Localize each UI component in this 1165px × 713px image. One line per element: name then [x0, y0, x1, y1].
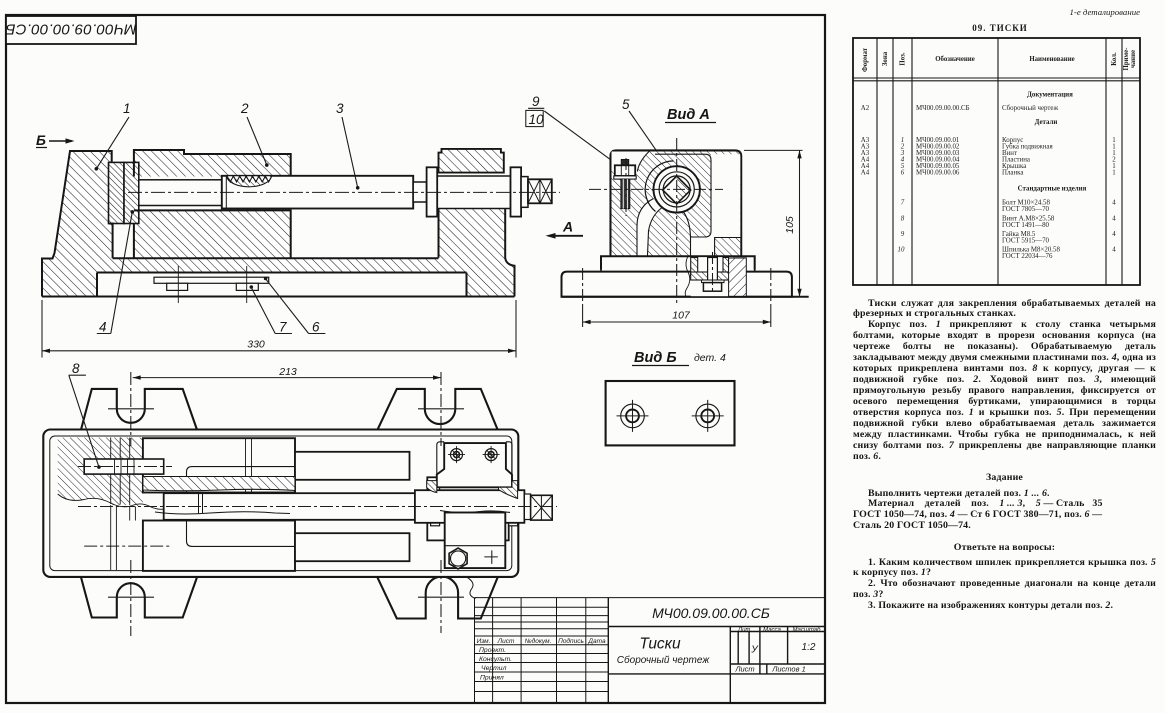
svg-text:А: А	[562, 219, 573, 235]
svg-text:7: 7	[279, 320, 287, 335]
svg-text:Листов 1: Листов 1	[771, 665, 806, 674]
svg-text:Проект.: Проект.	[479, 647, 506, 654]
svg-text:Лист: Лист	[497, 638, 515, 645]
svg-text:5: 5	[622, 97, 630, 112]
svg-text:МЧ00.09.00.00.СБ: МЧ00.09.00.00.СБ	[5, 21, 136, 38]
svg-text:У: У	[750, 645, 759, 656]
svg-text:Принял: Принял	[480, 675, 504, 682]
svg-text:МЧ00.09.00.00.СБ: МЧ00.09.00.00.СБ	[916, 105, 970, 112]
svg-text:Сборочный чертеж: Сборочный чертеж	[1002, 105, 1058, 112]
svg-text:№докум.: №докум.	[525, 637, 552, 645]
svg-text:Формат: Формат	[862, 47, 869, 72]
svg-text:Детали: Детали	[1035, 119, 1058, 126]
svg-text:4: 4	[1112, 231, 1116, 238]
svg-text:Лит.: Лит.	[737, 627, 752, 633]
svg-text:Масштаб: Масштаб	[792, 627, 821, 633]
svg-text:Изм.: Изм.	[477, 638, 491, 645]
svg-text:Консульт.: Консульт.	[479, 656, 512, 663]
svg-text:Подпись: Подпись	[558, 637, 584, 645]
svg-text:ГОСТ 1491—80: ГОСТ 1491—80	[1002, 222, 1050, 229]
svg-text:Планка: Планка	[1002, 170, 1023, 177]
svg-text:Вид А: Вид А	[667, 107, 710, 123]
svg-text:ГОСТ 22034—76: ГОСТ 22034—76	[1002, 253, 1053, 260]
svg-text:Зона: Зона	[882, 51, 889, 66]
svg-text:7: 7	[901, 200, 905, 207]
svg-text:105: 105	[784, 216, 796, 234]
svg-text:330: 330	[247, 339, 265, 351]
svg-text:Масса: Масса	[763, 627, 781, 633]
svg-text:9: 9	[532, 94, 540, 109]
svg-text:6: 6	[312, 320, 320, 335]
svg-text:2: 2	[240, 101, 249, 116]
svg-text:Чертил: Чертил	[481, 665, 507, 672]
svg-text:Б: Б	[36, 132, 46, 148]
svg-text:А2: А2	[861, 105, 870, 112]
svg-text:10: 10	[898, 247, 905, 254]
svg-text:4: 4	[1112, 247, 1116, 254]
svg-text:Приме-: Приме-	[1123, 47, 1130, 71]
svg-text:1: 1	[1112, 170, 1116, 177]
svg-text:дет. 4: дет. 4	[694, 352, 726, 364]
svg-text:Стандартные изделия: Стандартные изделия	[1018, 186, 1087, 193]
svg-text:ГОСТ 5915—70: ГОСТ 5915—70	[1002, 238, 1050, 245]
svg-text:213: 213	[278, 366, 297, 378]
svg-text:Наименование: Наименование	[1029, 56, 1074, 63]
svg-text:МЧ00.09.00.00.СБ: МЧ00.09.00.00.СБ	[652, 605, 770, 621]
svg-text:Кол.: Кол.	[1111, 52, 1118, 66]
svg-text:Тиски: Тиски	[639, 636, 681, 653]
svg-text:10: 10	[529, 112, 545, 127]
svg-text:9: 9	[901, 231, 905, 238]
svg-text:1: 1	[123, 101, 131, 116]
svg-text:4: 4	[1112, 216, 1116, 223]
svg-text:Обозначение: Обозначение	[935, 56, 974, 63]
svg-text:Поз.: Поз.	[900, 52, 907, 65]
svg-text:8: 8	[72, 361, 80, 376]
svg-text:Дата: Дата	[587, 638, 606, 645]
svg-text:чание: чание	[1130, 50, 1137, 68]
svg-text:Документация: Документация	[1027, 92, 1073, 99]
svg-text:МЧ00.09.00.06: МЧ00.09.00.06	[916, 170, 960, 177]
svg-text:1:2: 1:2	[802, 642, 816, 653]
svg-text:Сборочный чертеж: Сборочный чертеж	[617, 654, 711, 666]
svg-text:ГОСТ 7805—70: ГОСТ 7805—70	[1002, 206, 1050, 213]
svg-text:3: 3	[336, 101, 344, 116]
svg-text:Вид Б: Вид Б	[634, 350, 677, 366]
svg-text:8: 8	[901, 216, 905, 223]
svg-text:4: 4	[99, 320, 107, 335]
svg-text:6: 6	[901, 170, 905, 177]
svg-text:А4: А4	[861, 170, 870, 177]
svg-text:4: 4	[1112, 200, 1116, 207]
svg-text:107: 107	[672, 310, 691, 322]
svg-text:Лист: Лист	[734, 665, 754, 674]
